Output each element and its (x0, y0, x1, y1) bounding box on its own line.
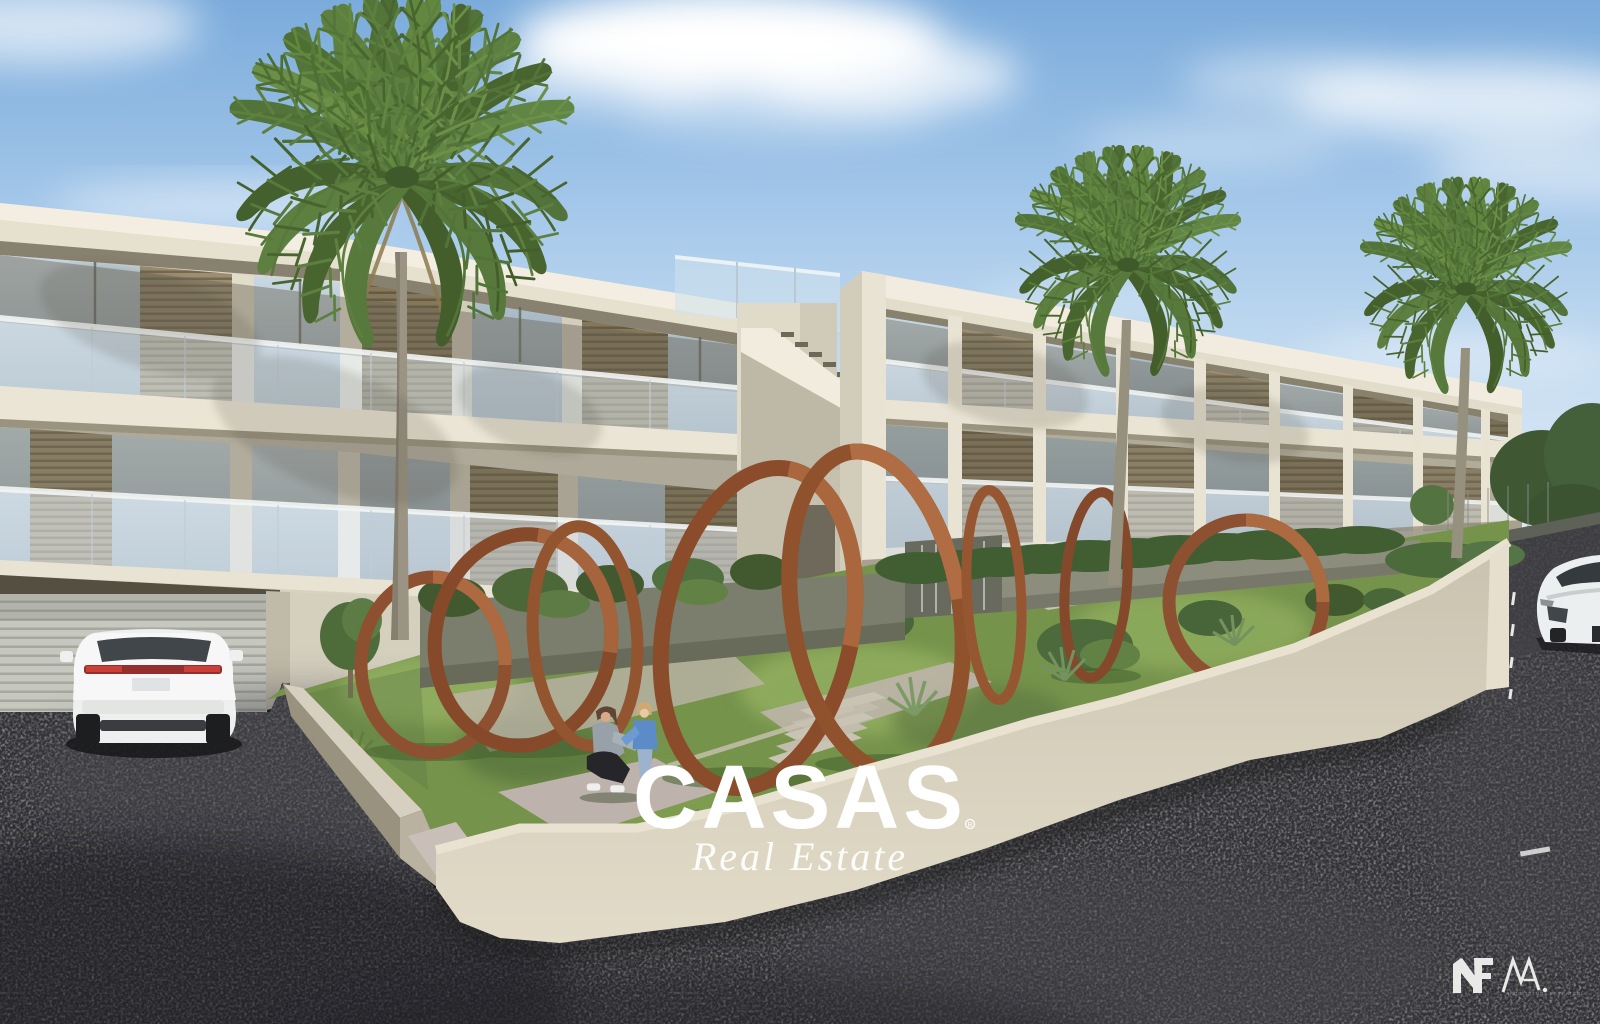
svg-text:CASAS: CASAS (633, 748, 967, 848)
svg-text:Real Estate: Real Estate (691, 834, 908, 879)
svg-text:R: R (967, 822, 972, 829)
svg-text:ARQUITETURA ESTRATEGIA: ARQUITETURA ESTRATEGIA (1506, 991, 1587, 996)
